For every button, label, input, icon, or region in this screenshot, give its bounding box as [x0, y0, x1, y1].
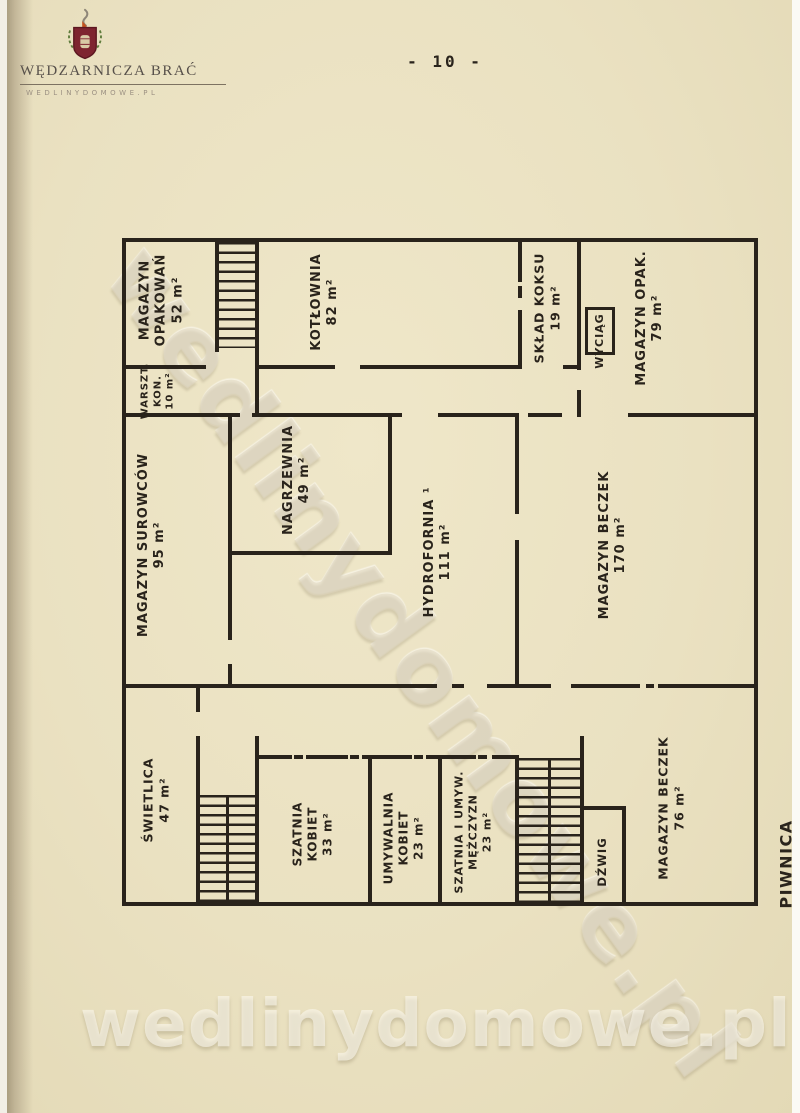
room-label-sklad-koksu: SKŁAD KOKSU19 m²: [531, 253, 562, 364]
room-label-line: OPAKOWAŃ: [154, 254, 170, 347]
wall-segment: [438, 755, 442, 906]
wall-segment: [426, 755, 476, 759]
room-label-szatnia-umyw-mezczyzn: SZATNIA I UMYW.MĘŻCZYZN23 m²: [452, 771, 493, 894]
room-label-line: MAGAZYN OPAK.: [634, 250, 650, 385]
room-label-line: KOTŁOWNIA: [309, 253, 325, 350]
wall-segment: [255, 365, 335, 369]
wall-segment: [452, 684, 464, 688]
wall-segment: [368, 755, 372, 906]
room-label-kotlownia: KOTŁOWNIA82 m²: [309, 253, 342, 350]
room-label-hydrofornia: HYDROFORNIA ¹111 m²: [422, 486, 455, 617]
room-label-swietlica: ŚWIETLICA47 m²: [140, 758, 171, 843]
room-label-line: MAGAZYN SUROWCÓW: [136, 453, 152, 637]
wall-segment: [252, 413, 402, 417]
floor-plan: PIWNICA MAGAZYNOPAKOWAŃ52 m²KOTŁOWNIA82 …: [0, 0, 800, 1113]
wall-segment: [658, 684, 754, 688]
wall-segment: [306, 755, 348, 759]
room-label-line: HYDROFORNIA ¹: [422, 486, 438, 617]
room-label-line: 95 m²: [152, 453, 168, 637]
wall-segment: [528, 413, 562, 417]
wall-segment: [228, 664, 232, 688]
room-label-line: KOBIET: [306, 802, 321, 867]
wall-segment: [255, 736, 259, 906]
room-label-line: 111 m²: [438, 486, 454, 617]
room-label-line: KON.: [152, 363, 165, 420]
room-label-line: WYCIĄG: [593, 313, 607, 368]
room-label-line: KOBIET: [397, 792, 412, 885]
room-label-line: 52 m²: [170, 254, 186, 347]
room-label-line: SKŁAD KOKSU: [531, 253, 547, 364]
wall-segment: [350, 755, 359, 759]
room-label-line: 10 m²: [164, 363, 177, 420]
staircase: [219, 242, 255, 348]
wall-segment: [518, 238, 522, 282]
wall-segment: [754, 238, 758, 906]
wall-segment: [577, 238, 581, 370]
wall-segment: [360, 365, 522, 369]
room-label-nagrzewnia: NAGRZEWNIA49 m²: [281, 425, 314, 535]
wall-segment: [388, 413, 392, 555]
room-label-line: UMYWALNIA: [382, 792, 397, 885]
room-label-line: NAGRZEWNIA: [281, 425, 297, 535]
room-label-line: 23 m²: [480, 771, 494, 894]
wall-segment: [518, 286, 522, 298]
room-label-line: 33 m²: [321, 802, 336, 867]
wall-segment: [196, 684, 200, 712]
room-label-line: 23 m²: [412, 792, 427, 885]
scanned-page: WĘDZARNICZA BRAĆ WEDLINYDOMOWE.PL - 10 -…: [0, 0, 800, 1113]
wall-segment: [487, 684, 551, 688]
room-label-line: 82 m²: [325, 253, 341, 350]
wall-segment: [515, 540, 519, 688]
room-label-umywalnia-kobiet: UMYWALNIAKOBIET23 m²: [382, 792, 427, 885]
room-label-line: DŹWIG: [595, 837, 609, 886]
room-label-line: 49 m²: [297, 425, 313, 535]
wall-segment: [571, 684, 640, 688]
wall-segment: [582, 806, 626, 810]
room-label-line: ŚWIETLICA: [140, 758, 156, 843]
room-label-line: SZATNIA: [291, 802, 306, 867]
room-label-line: 79 m²: [650, 250, 666, 385]
wall-segment: [228, 551, 390, 555]
staircase-stringer: [226, 795, 229, 902]
room-label-magazyn-opakowan: MAGAZYNOPAKOWAŃ52 m²: [138, 254, 187, 347]
plan-title: PIWNICA: [777, 819, 796, 908]
room-label-magazyn-surowcow: MAGAZYN SUROWCÓW95 m²: [136, 453, 169, 637]
wall-segment: [414, 755, 423, 759]
room-label-line: MĘŻCZYZN: [466, 771, 480, 894]
room-label-line: MAGAZYN BECZEK: [597, 471, 613, 620]
room-label-line: MAGAZYN: [138, 254, 154, 347]
wall-segment: [577, 390, 581, 417]
wall-segment: [515, 413, 519, 514]
wall-segment: [122, 684, 437, 688]
wall-segment: [478, 755, 487, 759]
staircase: [519, 758, 580, 904]
wall-segment: [646, 684, 654, 688]
wall-segment: [255, 238, 259, 417]
room-label-szatnia-kobiet: SZATNIAKOBIET33 m²: [291, 802, 336, 867]
room-label-magazyn-beczek-170: MAGAZYN BECZEK170 m²: [597, 471, 630, 620]
room-label-line: 76 m²: [671, 736, 687, 880]
wall-segment: [438, 413, 515, 417]
wall-segment: [622, 806, 626, 906]
wall-segment: [580, 736, 584, 906]
wall-segment: [228, 413, 232, 640]
room-label-line: WARSZT.: [139, 363, 152, 420]
wall-segment: [122, 238, 126, 906]
room-label-magazyn-opak: MAGAZYN OPAK.79 m²: [634, 250, 667, 385]
room-label-line: 19 m²: [547, 253, 563, 364]
room-label-wyciag: WYCIĄG: [593, 313, 607, 368]
wall-segment: [492, 755, 517, 759]
wall-segment: [518, 310, 522, 369]
wall-segment: [628, 413, 754, 417]
room-label-magazyn-beczek-76: MAGAZYN BECZEK76 m²: [655, 736, 686, 880]
staircase: [200, 795, 255, 902]
staircase-stringer: [548, 758, 551, 904]
room-label-line: MAGAZYN BECZEK: [655, 736, 671, 880]
room-label-line: SZATNIA I UMYW.: [452, 771, 466, 894]
room-label-dzwig: DŹWIG: [595, 837, 609, 886]
room-label-line: 170 m²: [613, 471, 629, 620]
room-label-line: 47 m²: [156, 758, 172, 843]
wall-segment: [257, 755, 292, 759]
room-label-warszt-kon: WARSZT.KON.10 m²: [139, 363, 177, 420]
wall-segment: [294, 755, 303, 759]
